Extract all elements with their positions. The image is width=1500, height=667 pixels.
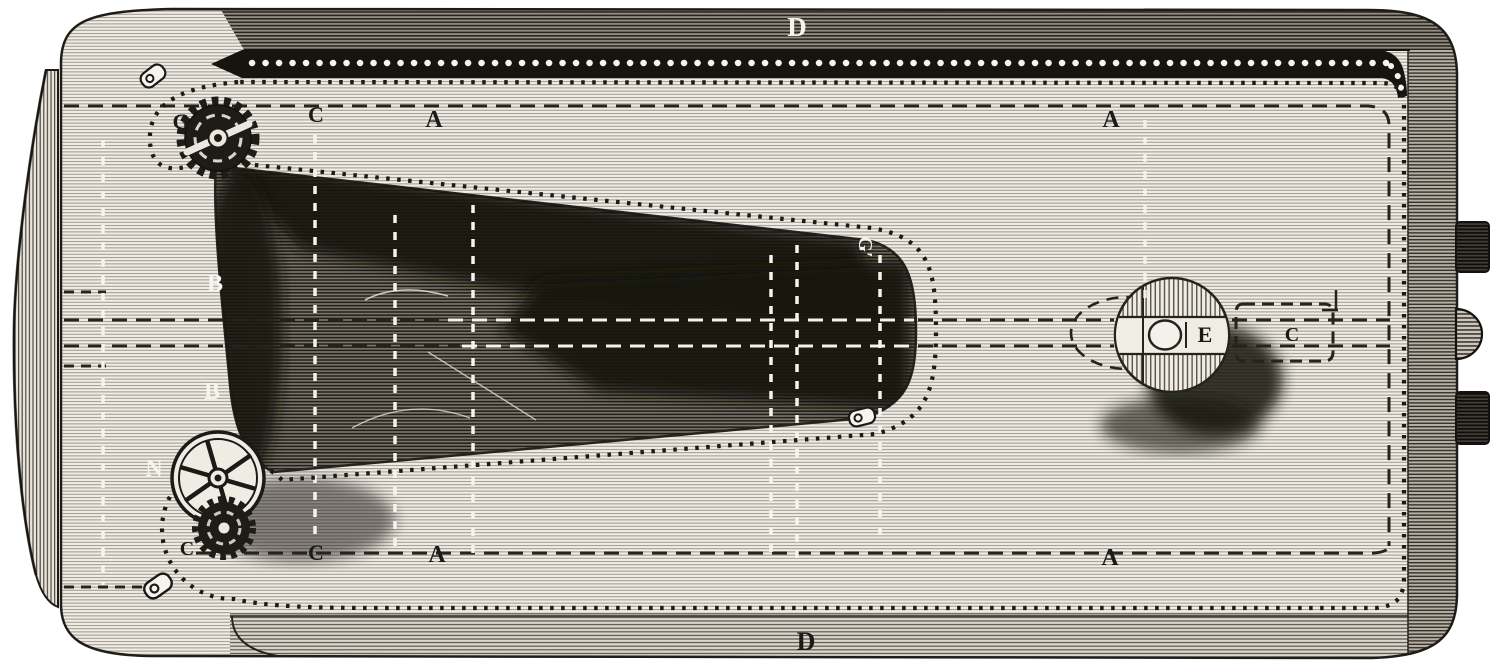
frame-band-bottom	[230, 612, 1458, 662]
frame-band-top	[220, 8, 1458, 50]
label-bottom-track-a-right: A	[1101, 545, 1119, 571]
label-top-track-a-left: A	[425, 107, 443, 133]
label-bed-b-lower: B	[204, 379, 220, 405]
label-top-track-a-right: A	[1102, 107, 1120, 133]
engraving-figure: D G C A A G′ B B N E C C C A A D	[0, 0, 1500, 667]
label-drive-gear: G	[172, 109, 189, 134]
frame-band-right	[1408, 8, 1460, 662]
label-flywheel: N	[145, 456, 163, 482]
label-top-track-c: C	[308, 102, 324, 127]
drum-hub	[1149, 321, 1181, 350]
label-bed-b-upper: B	[207, 271, 223, 297]
label-belt-top: D	[787, 12, 807, 42]
knob-upper	[1456, 222, 1489, 272]
engraving-canvas: D G C A A G′ B B N E C C C A A D	[0, 0, 1500, 667]
label-pinion-c: C	[180, 538, 194, 560]
label-belt-bottom: D	[797, 627, 816, 656]
label-bottom-track-a-left: A	[428, 542, 446, 568]
knob-lower	[1456, 392, 1489, 444]
label-drum: E	[1198, 322, 1213, 347]
label-carriage-c: C	[1285, 324, 1299, 346]
label-belt-clasp-mid: G′	[854, 236, 876, 257]
label-bottom-track-c: C	[308, 540, 324, 565]
